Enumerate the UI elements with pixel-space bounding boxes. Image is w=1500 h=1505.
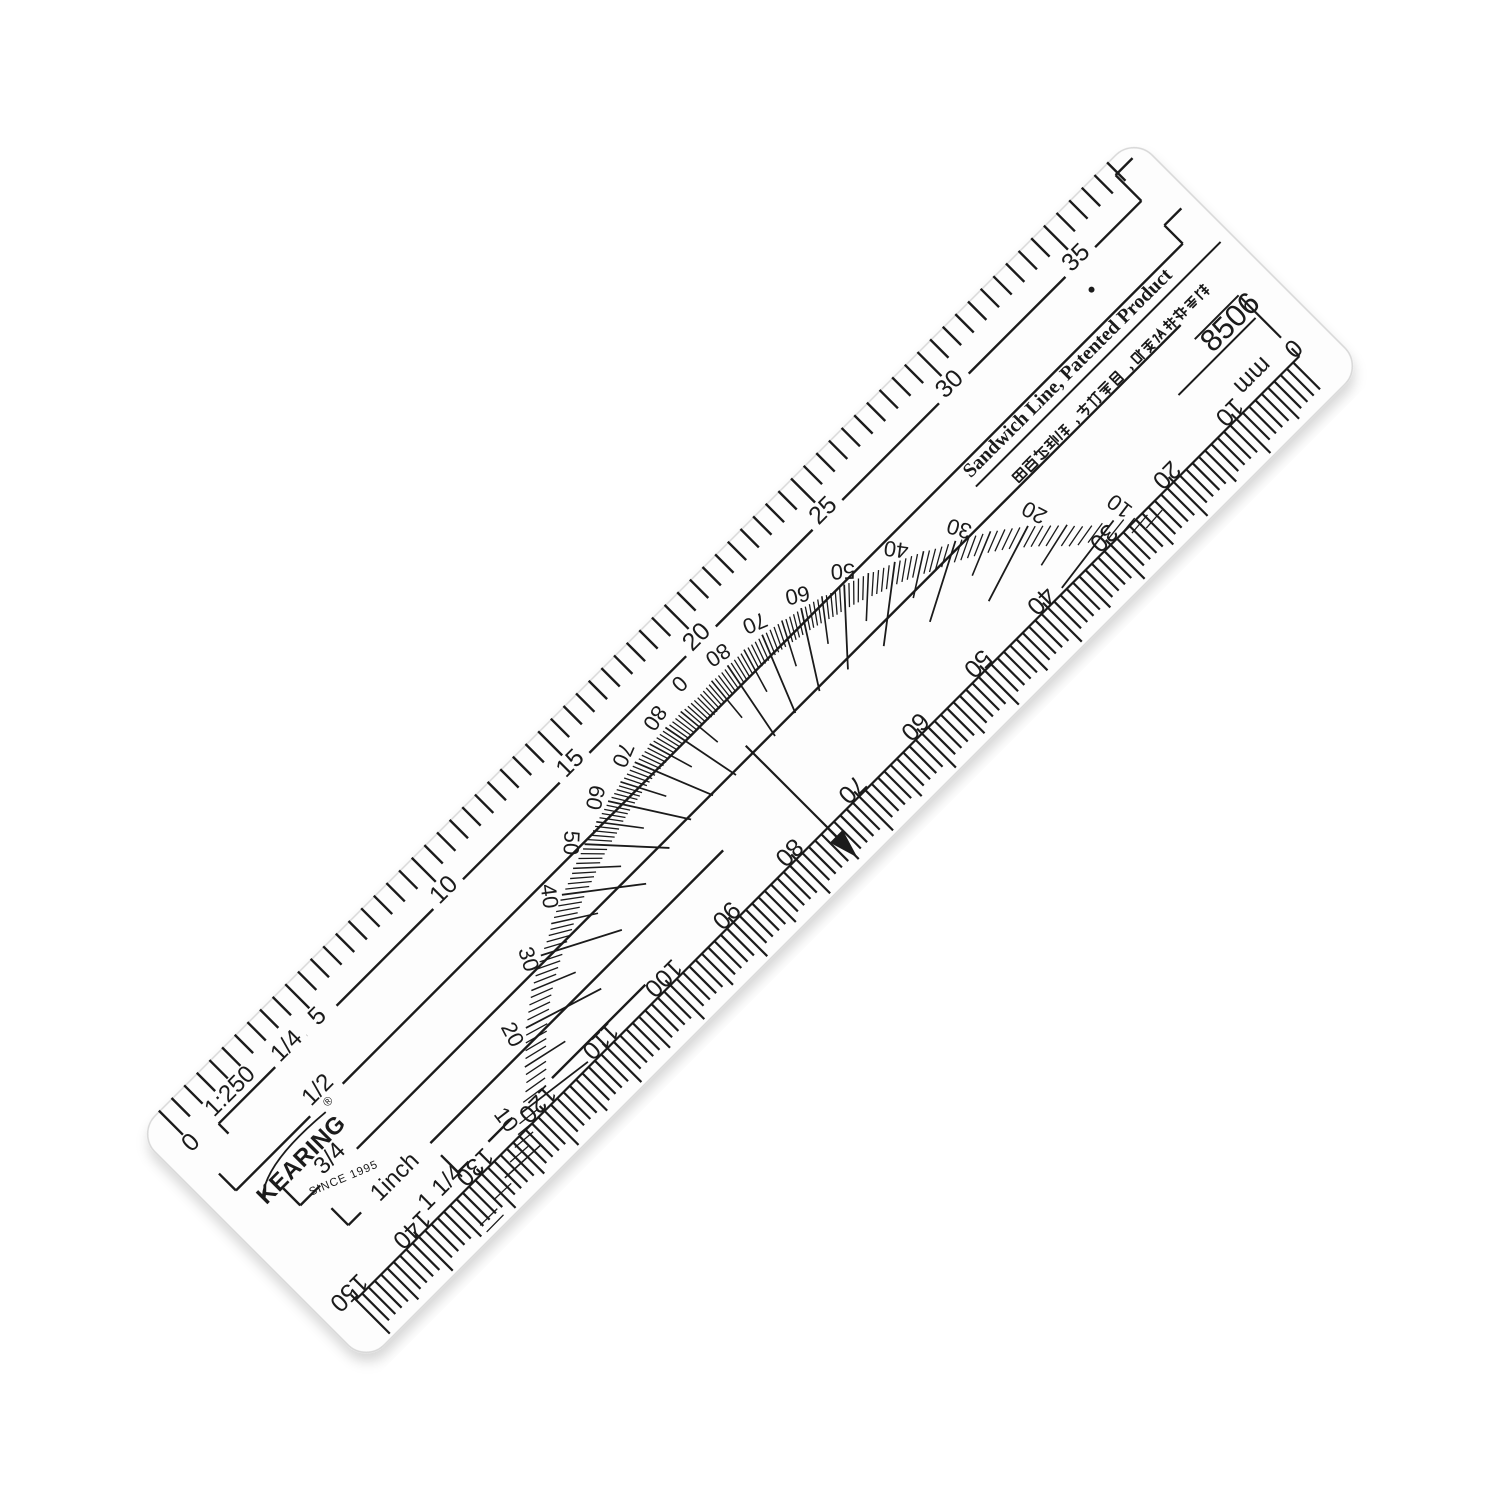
- svg-text:40: 40: [536, 882, 564, 910]
- svg-text:50: 50: [830, 559, 856, 585]
- svg-text:50: 50: [559, 830, 585, 856]
- svg-text:40: 40: [882, 536, 910, 564]
